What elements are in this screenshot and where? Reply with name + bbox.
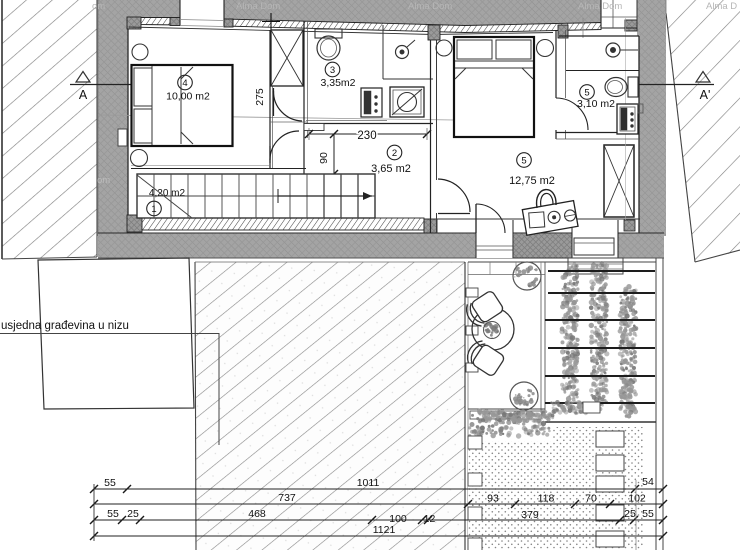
svg-text:70: 70	[585, 493, 597, 505]
svg-text:1121: 1121	[373, 524, 396, 536]
svg-text:1: 1	[151, 204, 156, 215]
svg-text:5: 5	[584, 87, 589, 98]
svg-text:Alma Dom: Alma Dom	[236, 1, 280, 12]
svg-text:5: 5	[521, 155, 526, 166]
svg-text:25: 25	[127, 508, 139, 520]
svg-text:4: 4	[182, 78, 187, 89]
svg-text:10,00 m2: 10,00 m2	[166, 91, 210, 103]
svg-text:3,10 m2: 3,10 m2	[577, 98, 615, 110]
svg-text:om: om	[92, 1, 105, 12]
svg-text:468: 468	[248, 508, 266, 520]
svg-text:1011: 1011	[357, 477, 380, 489]
svg-text:55: 55	[642, 508, 654, 520]
svg-text:12,75 m2: 12,75 m2	[509, 175, 555, 187]
svg-text:118: 118	[538, 493, 555, 505]
svg-text:2: 2	[392, 148, 397, 159]
svg-text:102: 102	[628, 493, 646, 505]
svg-text:54: 54	[642, 476, 654, 488]
svg-text:A: A	[79, 88, 88, 102]
svg-text:55: 55	[107, 508, 119, 520]
svg-text:25: 25	[624, 508, 636, 520]
svg-text:3,65 m2: 3,65 m2	[371, 163, 411, 175]
svg-text:usjedna građevina u nizu: usjedna građevina u nizu	[1, 320, 129, 332]
svg-text:737: 737	[278, 492, 296, 504]
svg-text:3: 3	[330, 65, 335, 76]
svg-text:55: 55	[104, 477, 116, 489]
svg-text:om: om	[97, 175, 110, 186]
svg-text:3,35m2: 3,35m2	[320, 77, 355, 89]
svg-text:A': A'	[700, 88, 711, 102]
svg-text:93: 93	[487, 493, 499, 505]
svg-text:230: 230	[357, 130, 376, 142]
svg-text:90: 90	[318, 152, 330, 164]
svg-text:275: 275	[254, 88, 266, 106]
svg-text:379: 379	[521, 509, 539, 521]
svg-text:Alma Dom: Alma Dom	[408, 1, 452, 12]
svg-text:Alma Dom: Alma Dom	[578, 1, 622, 12]
svg-text:4,20 m2: 4,20 m2	[149, 188, 186, 199]
svg-text:12: 12	[424, 513, 436, 525]
svg-text:Alma D: Alma D	[706, 1, 737, 12]
